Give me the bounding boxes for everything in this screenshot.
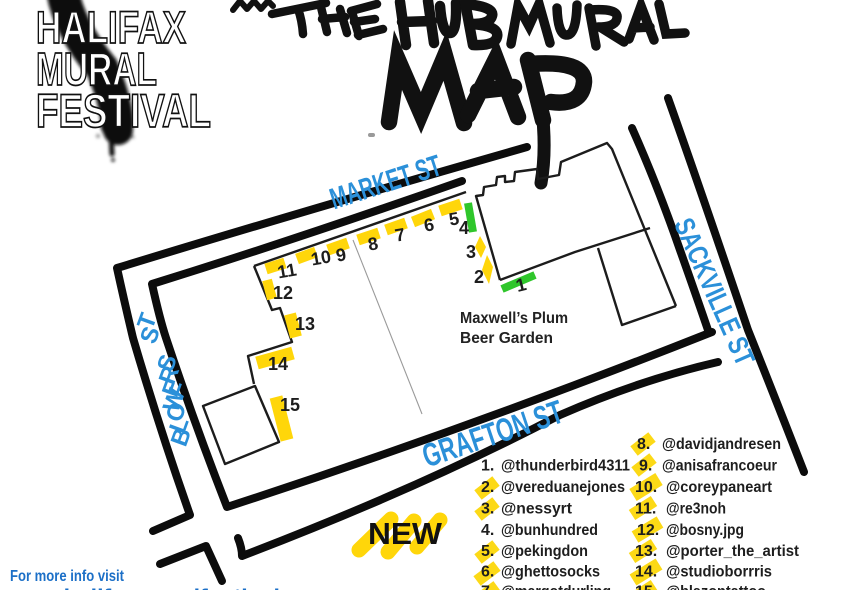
svg-text:@bunhundred: @bunhundred [501,522,598,539]
svg-text:3: 3 [466,242,476,262]
svg-text:@porter_the_artist: @porter_the_artist [666,543,800,560]
svg-text:15: 15 [280,395,300,415]
svg-text:12.: 12. [637,522,659,539]
svg-text:10.: 10. [635,479,657,496]
svg-text:Beer Garden: Beer Garden [460,330,553,347]
svg-text:@vereduanejones: @vereduanejones [501,479,625,496]
svg-text:13: 13 [295,314,315,334]
svg-text:1.: 1. [481,458,494,475]
svg-text:@bosny.jpg: @bosny.jpg [666,522,744,539]
svg-text:@thunderbird4311: @thunderbird4311 [501,458,630,475]
svg-text:12: 12 [273,283,293,303]
svg-text:2: 2 [474,267,484,287]
svg-text:@blazontattoo: @blazontattoo [666,584,766,590]
svg-text:11: 11 [276,259,298,282]
svg-text:Maxwell’s Plum: Maxwell’s Plum [460,310,568,327]
svg-text:8.: 8. [637,436,650,453]
svg-text:@davidjandresen: @davidjandresen [662,436,781,453]
svg-text:For more info visit: For more info visit [10,568,124,585]
svg-text:5.: 5. [481,543,494,560]
svg-text:@margotdurling: @margotdurling [501,584,611,590]
svg-text:14: 14 [268,354,288,374]
svg-text:6.: 6. [481,564,494,581]
svg-text:13.: 13. [635,543,657,560]
svg-text:@pekingdon: @pekingdon [501,543,588,560]
svg-text:FESTIVAL: FESTIVAL [36,84,211,137]
svg-text:@re3noh: @re3noh [666,500,726,517]
svg-text:@coreypaneart: @coreypaneart [666,479,773,496]
svg-text:@studioborrris: @studioborrris [666,564,772,581]
svg-text:4.: 4. [481,522,494,539]
svg-text:9.: 9. [639,458,652,475]
svg-text:7.: 7. [481,584,494,590]
svg-text:4: 4 [459,218,469,238]
svg-text:15.: 15. [635,584,657,590]
svg-text:11.: 11. [635,500,656,517]
svg-text:@anisafrancoeur: @anisafrancoeur [662,458,777,475]
svg-text:14.: 14. [635,564,657,581]
svg-text:2.: 2. [481,479,494,496]
svg-text:@nessyrt: @nessyrt [501,500,573,517]
svg-text:3.: 3. [481,500,494,517]
svg-text:10: 10 [309,246,332,269]
svg-text:NEW: NEW [368,516,443,551]
svg-text:@ghettosocks: @ghettosocks [501,564,600,581]
